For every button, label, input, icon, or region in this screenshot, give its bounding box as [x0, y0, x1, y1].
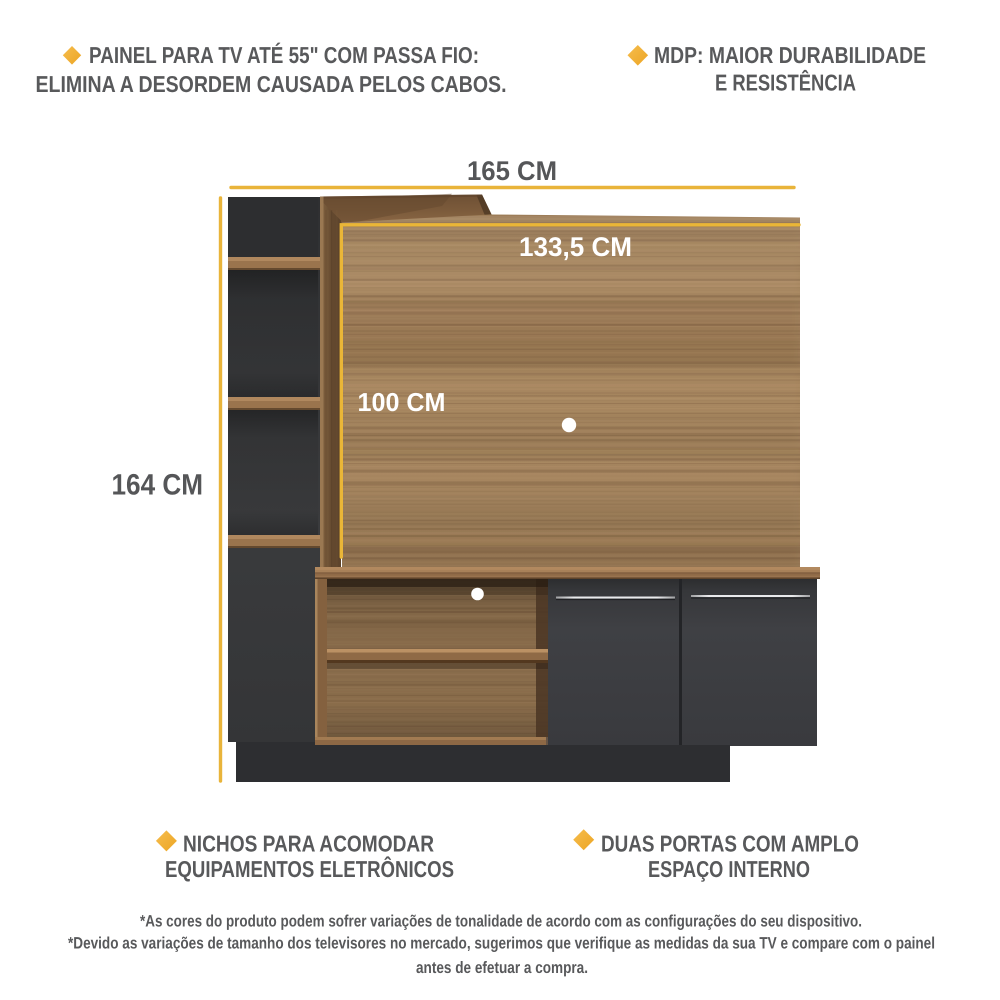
svg-text:*Devido as variações de tamanh: *Devido as variações de tamanho dos tele…	[68, 935, 935, 953]
svg-text:DUAS PORTAS COM AMPLO: DUAS PORTAS COM AMPLO	[601, 831, 859, 857]
svg-text:ELIMINA A DESORDEM CAUSADA PEL: ELIMINA A DESORDEM CAUSADA PELOS CABOS.	[36, 71, 507, 97]
svg-text:antes de efetuar a compra.: antes de efetuar a compra.	[416, 959, 588, 977]
svg-text:164 CM: 164 CM	[112, 469, 204, 502]
svg-text:165 CM: 165 CM	[467, 156, 557, 186]
svg-text:PAINEL PARA TV ATÉ 55" COM PAS: PAINEL PARA TV ATÉ 55" COM PASSA FIO:	[89, 42, 479, 68]
svg-text:ESPAÇO INTERNO: ESPAÇO INTERNO	[648, 856, 810, 882]
svg-text:133,5 CM: 133,5 CM	[519, 232, 632, 262]
svg-text:*As cores do produto podem sof: *As cores do produto podem sofrer variaç…	[140, 913, 862, 931]
svg-text:100 CM: 100 CM	[358, 387, 446, 417]
svg-text:MDP: MAIOR DURABILIDADE: MDP: MAIOR DURABILIDADE	[654, 42, 926, 68]
svg-text:NICHOS PARA ACOMODAR: NICHOS PARA ACOMODAR	[183, 831, 434, 857]
svg-text:EQUIPAMENTOS ELETRÔNICOS: EQUIPAMENTOS ELETRÔNICOS	[165, 856, 454, 882]
svg-text:E RESISTÊNCIA: E RESISTÊNCIA	[715, 70, 856, 96]
